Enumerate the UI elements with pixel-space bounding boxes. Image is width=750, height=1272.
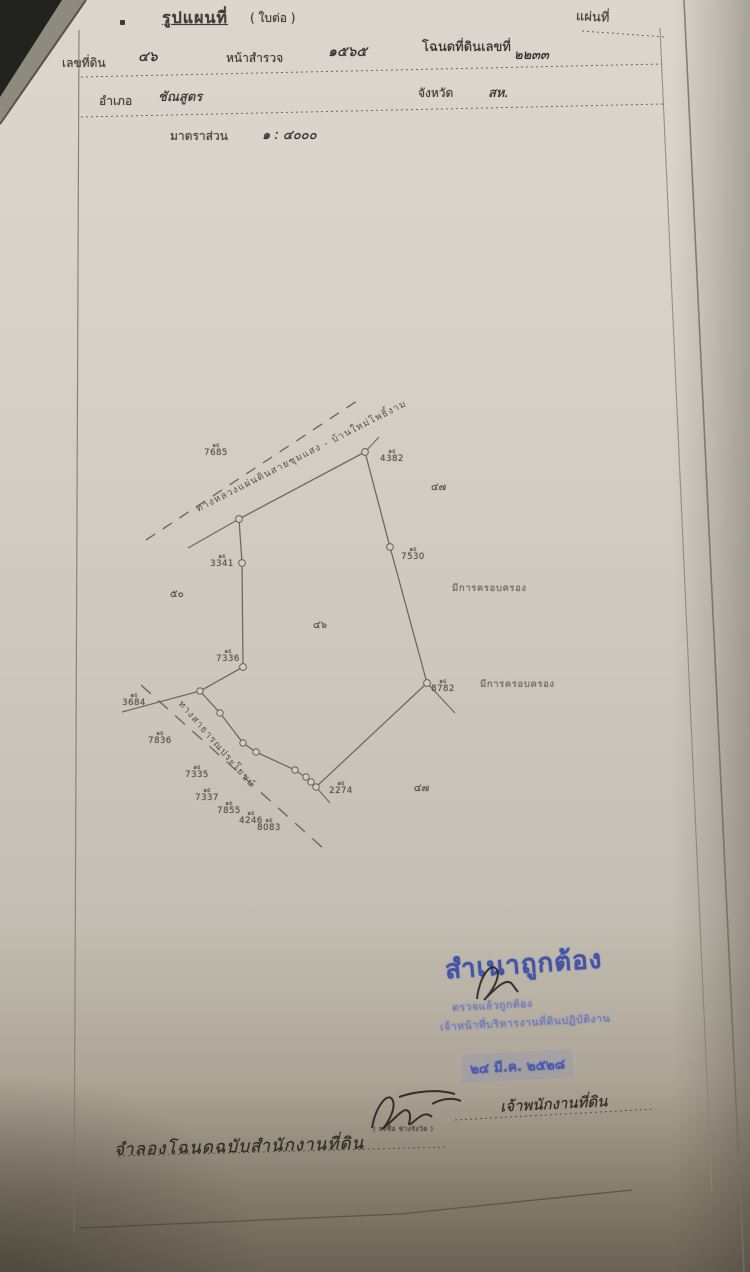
stamp-signature-scribble (477, 967, 518, 1000)
bottom-corner-shadow (0, 1062, 280, 1272)
main-signature-scribble (372, 1091, 461, 1129)
right-fold-shadow (672, 0, 750, 1272)
scanned-deed-map-page: ทางหลวงแผ่นดินสายชุมแสง - บ้านใหม่โพธิ์ง… (0, 0, 750, 1272)
